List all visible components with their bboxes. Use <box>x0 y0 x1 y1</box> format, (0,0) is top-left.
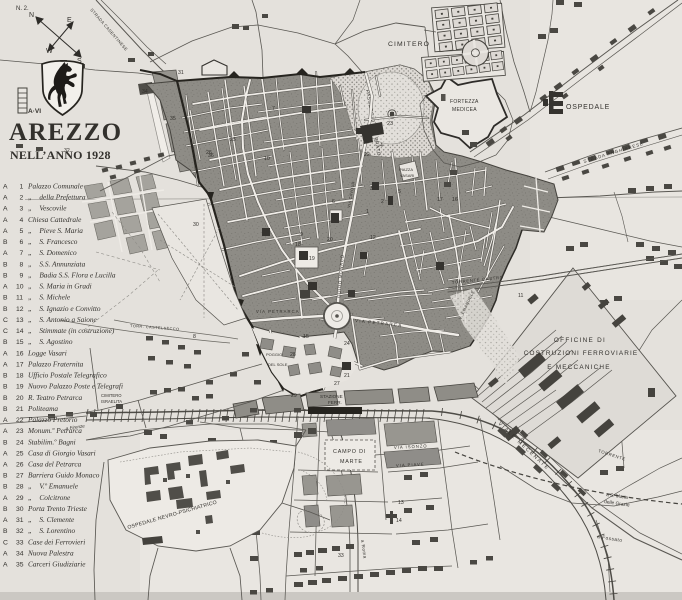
svg-text:A: A <box>3 250 8 257</box>
svg-text:VIA PETRARCA: VIA PETRARCA <box>256 309 300 314</box>
svg-text:11: 11 <box>518 293 523 299</box>
svg-text:Politeama: Politeama <box>27 404 58 413</box>
svg-text:C: C <box>3 539 8 546</box>
svg-text:27: 27 <box>334 381 340 387</box>
svg-text:A: A <box>3 517 8 524</box>
svg-text:PIAZZA: PIAZZA <box>399 167 413 172</box>
svg-text:8: 8 <box>20 261 24 268</box>
svg-text:B: B <box>3 261 8 268</box>
svg-text:A: A <box>3 217 8 224</box>
svg-text:A·VI: A·VI <box>28 108 41 115</box>
svg-text:Casa del Petrarca: Casa del Petrarca <box>28 460 82 469</box>
svg-text:9: 9 <box>300 232 303 238</box>
svg-text:18: 18 <box>295 242 301 248</box>
svg-text:12: 12 <box>16 306 24 313</box>
svg-text:Stabilim.º Bagni: Stabilim.º Bagni <box>28 437 76 446</box>
svg-text:„ S. Antonio a Saione: „ S. Antonio a Saione <box>28 315 98 324</box>
svg-text:13: 13 <box>398 500 404 506</box>
svg-text:19: 19 <box>16 384 24 391</box>
svg-text:„ S. Agostino: „ S. Agostino <box>28 337 73 346</box>
svg-text:33: 33 <box>338 553 344 559</box>
svg-text:ISRAELITA: ISRAELITA <box>101 399 122 404</box>
svg-text:A: A <box>3 228 8 235</box>
svg-text:A: A <box>3 195 8 202</box>
svg-text:N. 2.: N. 2. <box>16 6 29 12</box>
svg-text:„ Vescovile: „ Vescovile <box>28 204 67 213</box>
svg-text:Palazzo Pretorio: Palazzo Pretorio <box>27 415 78 424</box>
svg-text:13: 13 <box>16 317 24 324</box>
svg-text:6: 6 <box>332 199 335 205</box>
svg-text:3: 3 <box>370 186 373 192</box>
svg-text:20: 20 <box>16 395 24 402</box>
svg-text:Palazzo Comunale: Palazzo Comunale <box>27 182 84 191</box>
svg-text:16: 16 <box>16 350 24 357</box>
svg-text:B: B <box>3 406 8 413</box>
svg-text:B: B <box>3 339 8 346</box>
svg-text:21: 21 <box>16 406 24 413</box>
svg-text:35: 35 <box>16 562 24 569</box>
svg-text:R. Teatro Petrarca: R. Teatro Petrarca <box>27 393 82 402</box>
svg-text:30: 30 <box>193 222 199 228</box>
svg-text:VASARI: VASARI <box>400 173 414 178</box>
svg-text:CIMITERO: CIMITERO <box>388 41 430 48</box>
svg-text:29: 29 <box>291 393 297 399</box>
svg-text:15: 15 <box>16 339 24 346</box>
svg-text:„ Pieve S. Maria: „ Pieve S. Maria <box>28 226 83 235</box>
svg-text:15: 15 <box>303 334 309 340</box>
svg-text:„ Stimmate (in costruzione): „ Stimmate (in costruzione) <box>28 326 115 335</box>
svg-text:23: 23 <box>387 121 393 127</box>
svg-text:30: 30 <box>16 506 24 513</box>
svg-text:25: 25 <box>16 450 24 457</box>
svg-text:1: 1 <box>20 184 24 191</box>
svg-text:33: 33 <box>16 539 24 546</box>
svg-text:28: 28 <box>16 484 24 491</box>
svg-text:21: 21 <box>344 373 350 379</box>
svg-text:„ S. Ignazio e Convitto: „ S. Ignazio e Convitto <box>28 304 101 313</box>
svg-text:C: C <box>3 317 8 324</box>
svg-text:COSTRUZIONI FERROVIARIE: COSTRUZIONI FERROVIARIE <box>524 350 638 357</box>
svg-text:7: 7 <box>272 106 275 112</box>
svg-text:B: B <box>3 373 8 380</box>
svg-text:B: B <box>3 239 8 246</box>
svg-text:24: 24 <box>344 341 350 347</box>
svg-text:OSPEDALE: OSPEDALE <box>566 104 610 111</box>
svg-text:14: 14 <box>16 328 24 335</box>
svg-text:B: B <box>3 306 8 313</box>
svg-text:Ufficio Postale Telegrafico: Ufficio Postale Telegrafico <box>28 371 107 380</box>
svg-text:22: 22 <box>16 417 24 424</box>
svg-text:„ Colcitrone: „ Colcitrone <box>28 493 71 502</box>
svg-text:B: B <box>3 384 8 391</box>
svg-text:Casa di Giorgio Vasari: Casa di Giorgio Vasari <box>28 448 96 457</box>
svg-text:A: A <box>3 551 8 558</box>
svg-text:MARTE: MARTE <box>340 459 363 465</box>
svg-text:31: 31 <box>16 517 24 524</box>
svg-text:10: 10 <box>16 284 24 291</box>
svg-text:B: B <box>3 506 8 513</box>
svg-text:14: 14 <box>396 518 402 524</box>
svg-text:„ Badia S.S. Flora e Lucill: „ Badia S.S. Flora e Lucilla <box>28 271 116 280</box>
svg-text:10: 10 <box>264 156 270 162</box>
svg-text:36: 36 <box>208 153 214 159</box>
svg-text:FERR.: FERR. <box>328 400 342 405</box>
svg-text:Monum.º Petrarca: Monum.º Petrarca <box>27 426 82 435</box>
svg-text:W: W <box>46 48 53 55</box>
svg-text:OFFICINE DI: OFFICINE DI <box>554 337 606 344</box>
svg-text:Nuovo Palazzo Poste e Telegraf: Nuovo Palazzo Poste e Telegrafi <box>27 382 123 391</box>
svg-text:„ V.º Emanuele: „ V.º Emanuele <box>28 482 79 491</box>
svg-text:34: 34 <box>16 551 24 558</box>
svg-text:E: E <box>67 17 72 24</box>
svg-text:E MECCANICHE: E MECCANICHE <box>547 364 610 371</box>
svg-text:24: 24 <box>16 439 24 446</box>
svg-text:2: 2 <box>20 195 24 202</box>
svg-text:Nuova Palestra: Nuova Palestra <box>27 549 74 558</box>
svg-text:Case dei Ferrovieri: Case dei Ferrovieri <box>28 537 85 546</box>
svg-text:11: 11 <box>16 295 23 302</box>
svg-text:Logge Vasari: Logge Vasari <box>27 348 67 357</box>
svg-text:23: 23 <box>16 428 24 435</box>
svg-text:B: B <box>3 295 8 302</box>
svg-text:A: A <box>3 450 8 457</box>
svg-text:2: 2 <box>381 199 384 205</box>
svg-text:A: A <box>3 184 8 191</box>
svg-text:4: 4 <box>380 143 383 149</box>
svg-text:DEL SOLE: DEL SOLE <box>268 362 288 367</box>
svg-text:35: 35 <box>170 116 176 122</box>
svg-text:B: B <box>3 395 8 402</box>
svg-text:Palazzo Fraternita: Palazzo Fraternita <box>27 359 84 368</box>
svg-text:Carceri Giudiziarie: Carceri Giudiziarie <box>28 560 86 569</box>
svg-text:A: A <box>3 495 8 502</box>
svg-text:5: 5 <box>20 228 24 235</box>
svg-text:„ S. Maria in Gradi: „ S. Maria in Gradi <box>28 282 92 291</box>
svg-text:A: A <box>3 284 8 291</box>
svg-text:5: 5 <box>398 189 401 195</box>
svg-text:B: B <box>3 473 8 480</box>
svg-text:CAMPO DI: CAMPO DI <box>333 449 366 455</box>
svg-text:A: A <box>3 417 8 424</box>
svg-text:POGGIO: POGGIO <box>266 352 282 357</box>
svg-text:A: A <box>3 562 8 569</box>
svg-text:C: C <box>3 328 8 335</box>
svg-text:7: 7 <box>20 250 24 257</box>
svg-text:NELL’ANNO 1928: NELL’ANNO 1928 <box>10 148 111 162</box>
svg-text:A: A <box>3 462 8 469</box>
svg-text:A: A <box>3 361 8 368</box>
svg-text:B: B <box>3 273 8 280</box>
svg-text:N: N <box>29 12 34 19</box>
svg-text:19: 19 <box>309 256 315 262</box>
svg-text:6: 6 <box>20 239 24 246</box>
svg-text:34: 34 <box>142 89 148 95</box>
svg-text:STAZIONE: STAZIONE <box>320 394 343 399</box>
svg-text:„ S. Lorentino: „ S. Lorentino <box>28 526 76 535</box>
svg-text:Porta Trento Trieste: Porta Trento Trieste <box>27 504 88 513</box>
svg-text:CIMITERO: CIMITERO <box>101 393 122 398</box>
svg-text:„ S.S. Annunziata: „ S.S. Annunziata <box>28 259 86 268</box>
svg-text:26: 26 <box>16 462 24 469</box>
svg-text:B: B <box>3 484 8 491</box>
svg-text:20: 20 <box>327 237 333 243</box>
svg-text:„ della Prefettura: „ della Prefettura <box>28 193 86 202</box>
svg-text:AREZZO: AREZZO <box>9 119 122 146</box>
svg-text:A: A <box>3 206 8 213</box>
svg-text:4: 4 <box>20 217 24 224</box>
svg-text:„ S. Francesco: „ S. Francesco <box>28 237 78 246</box>
svg-text:29: 29 <box>16 495 24 502</box>
svg-text:17: 17 <box>16 361 24 368</box>
svg-text:A: A <box>3 428 8 435</box>
svg-text:28: 28 <box>290 352 296 358</box>
svg-text:3: 3 <box>20 206 24 213</box>
svg-text:B: B <box>3 439 8 446</box>
svg-text:„ S. Michele: „ S. Michele <box>28 293 71 302</box>
svg-text:12: 12 <box>370 235 376 241</box>
svg-text:8: 8 <box>193 334 196 340</box>
svg-text:27: 27 <box>16 473 24 480</box>
svg-text:A: A <box>3 350 8 357</box>
svg-text:16: 16 <box>452 197 458 203</box>
svg-text:Chiesa Cattedrale: Chiesa Cattedrale <box>28 215 82 224</box>
svg-text:18: 18 <box>16 373 24 380</box>
svg-text:Barriera Guido Monaco: Barriera Guido Monaco <box>28 471 100 480</box>
svg-text:B: B <box>3 528 8 535</box>
svg-text:MEDICEA: MEDICEA <box>452 107 477 113</box>
svg-text:32: 32 <box>16 528 24 535</box>
svg-text:„ S. Domenico: „ S. Domenico <box>28 248 77 257</box>
svg-text:25: 25 <box>230 137 236 143</box>
svg-text:31: 31 <box>178 70 184 76</box>
svg-text:„ S. Clemente: „ S. Clemente <box>28 515 75 524</box>
svg-text:1: 1 <box>366 209 369 215</box>
svg-text:17: 17 <box>437 197 443 203</box>
svg-text:FORTEZZA: FORTEZZA <box>450 99 479 105</box>
svg-text:9: 9 <box>20 273 24 280</box>
svg-text:22: 22 <box>364 152 370 158</box>
